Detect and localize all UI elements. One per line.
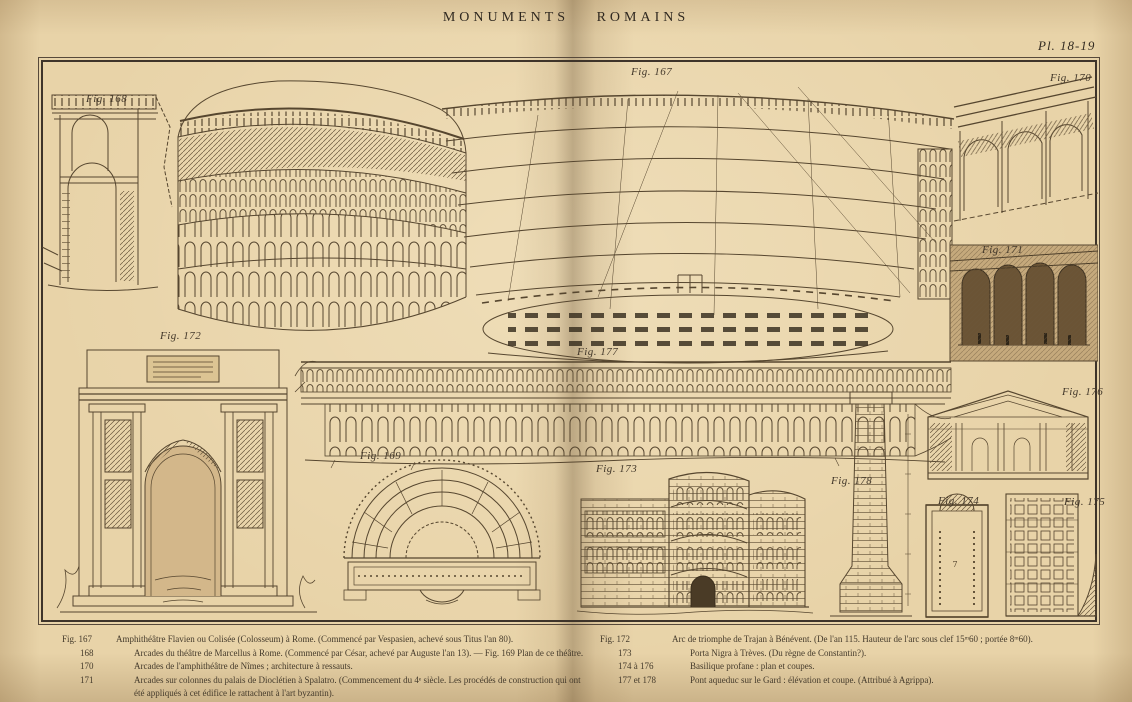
- figure-label-167: Fig. 167: [631, 66, 672, 78]
- figure-173-porta-nigra-sketch: [577, 472, 813, 614]
- book-plate-page: MONUMENTS ROMAINS Pl. 18-19: [0, 0, 1132, 702]
- caption-text: Pont aqueduc sur le Gard : élévation et …: [684, 674, 1125, 688]
- caption-ref: 174 à 176: [600, 660, 684, 674]
- plate-number: Pl. 18-19: [1038, 38, 1095, 54]
- figure-168-marcellus-arcade-sketch: [42, 95, 172, 291]
- figure-label-175: Fig. 175: [1064, 496, 1105, 508]
- svg-text:7: 7: [952, 560, 957, 569]
- caption-row: 177 et 178 Pont aqueduc sur le Gard : él…: [600, 674, 1125, 688]
- figure-label-170: Fig. 170: [1050, 72, 1091, 84]
- figure-label-176: Fig. 176: [1062, 386, 1103, 398]
- caption-ref: 168: [62, 647, 126, 661]
- figure-175-basilica-coupe-sketch: [1006, 494, 1096, 616]
- page-title: MONUMENTS ROMAINS: [0, 10, 1132, 26]
- figure-label-173: Fig. 173: [596, 463, 637, 475]
- caption-row: 170 Arcades de l'amphithéâtre de Nîmes ;…: [62, 660, 587, 674]
- caption-column-right: Fig. 172 Arc de triomphe de Trajan à Bén…: [600, 633, 1125, 687]
- caption-row: 171 Arcades sur colonnes du palais de Di…: [62, 674, 587, 701]
- caption-text: Amphithéâtre Flavien ou Colisée (Colosse…: [108, 633, 587, 647]
- figure-167-colosseum-interior-sketch: [442, 87, 954, 363]
- caption-row: 168 Arcades du théâtre de Marcellus à Ro…: [62, 647, 587, 661]
- caption-text: Arcades de l'amphithéâtre de Nîmes ; arc…: [126, 660, 587, 674]
- caption-row: 173 Porta Nigra à Trèves. (Du règne de C…: [600, 647, 1125, 661]
- caption-text: Basilique profane : plan et coupes.: [684, 660, 1125, 674]
- caption-row: Fig. 167 Amphithéâtre Flavien ou Colisée…: [62, 633, 587, 647]
- caption-ref: Fig. 172: [600, 633, 666, 647]
- caption-ref: 173: [600, 647, 684, 661]
- caption-ref: Fig. 167: [62, 633, 108, 647]
- figure-label-172: Fig. 172: [160, 330, 201, 342]
- figure-label-177: Fig. 177: [577, 346, 618, 358]
- caption-text: Porta Nigra à Trèves. (Du règne de Const…: [684, 647, 1125, 661]
- caption-column-left: Fig. 167 Amphithéâtre Flavien ou Colisée…: [62, 633, 587, 701]
- caption-text: Arcades sur colonnes du palais de Dioclé…: [126, 674, 587, 701]
- caption-text: Arc de triomphe de Trajan à Bénévent. (D…: [666, 633, 1125, 647]
- caption-ref: 177 et 178: [600, 674, 684, 688]
- caption-ref: 170: [62, 660, 126, 674]
- caption-text: Arcades du théâtre de Marcellus à Rome. …: [126, 647, 587, 661]
- figure-label-178: Fig. 178: [831, 475, 872, 487]
- figure-label-171: Fig. 171: [982, 244, 1023, 256]
- figure-176-basilica-section-sketch: [928, 391, 1088, 479]
- figure-label-174: Fig. 174: [938, 495, 979, 507]
- figure-172-trajan-arch-sketch: [57, 350, 317, 612]
- figure-label-168: Fig. 168: [86, 93, 127, 105]
- figure-label-169: Fig. 169: [360, 450, 401, 462]
- caption-ref: 171: [62, 674, 126, 701]
- figure-167-colosseum-exterior-sketch: [178, 81, 466, 330]
- caption-row: Fig. 172 Arc de triomphe de Trajan à Bén…: [600, 633, 1125, 647]
- figure-174-basilica-plan-sketch: 7: [926, 494, 988, 617]
- figure-169-theatre-plan-sketch: [344, 460, 540, 604]
- caption-row: 174 à 176 Basilique profane : plan et co…: [600, 660, 1125, 674]
- figure-171-spalato-interior-sketch: [950, 245, 1098, 361]
- figure-170-nimes-arcade-sketch: [954, 77, 1098, 221]
